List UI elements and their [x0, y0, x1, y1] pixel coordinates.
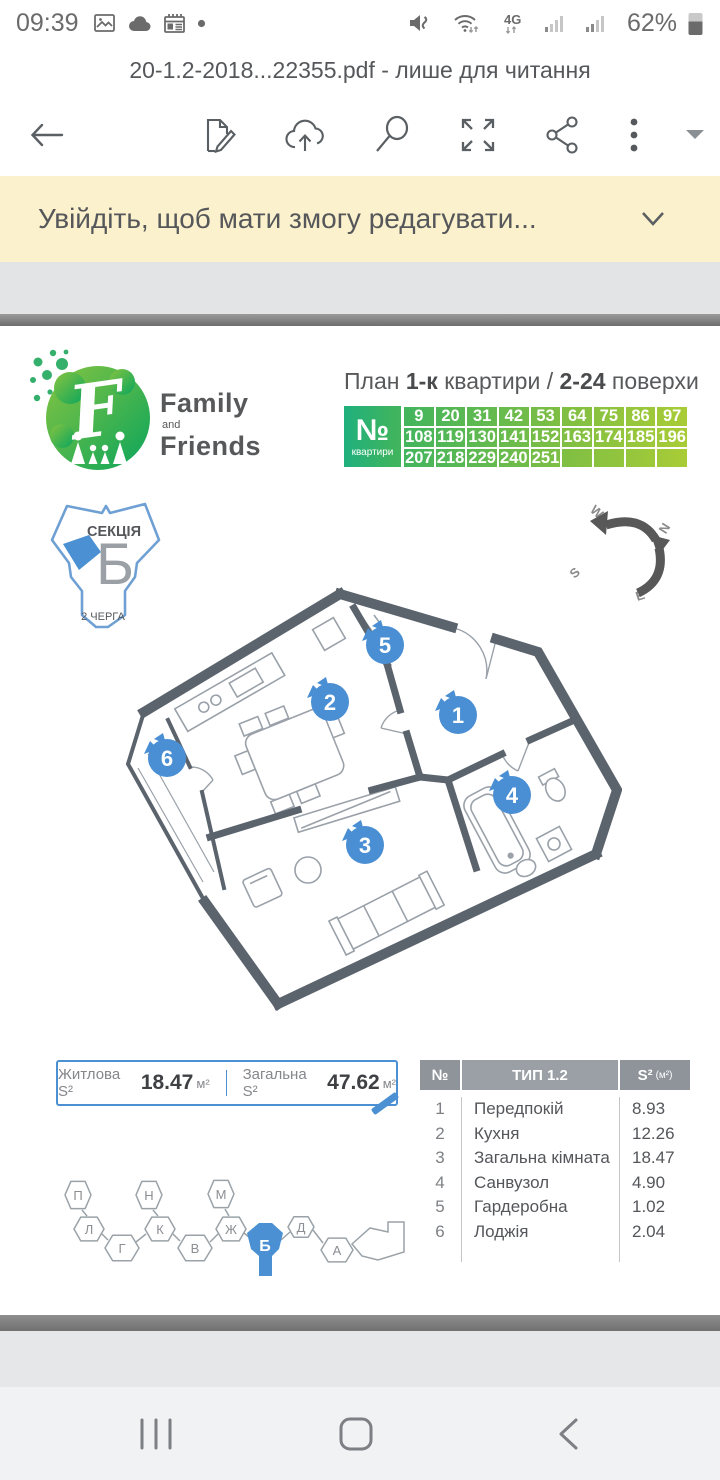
toolbar [0, 94, 720, 176]
room-marker-1: 1 [435, 690, 477, 734]
brand-wordmark: Family and Friends [160, 390, 261, 460]
apartment-number-cell: 97 [656, 406, 688, 427]
notification-dot-icon [197, 19, 206, 28]
room-number: 1 [420, 1099, 460, 1119]
apartment-number-cell: 75 [593, 406, 625, 427]
floor-plan: 123456 [102, 582, 622, 1050]
apartment-number-cell: 9 [403, 406, 435, 427]
sign-in-banner-text: Увійдіть, щоб мати змогу редагувати... [38, 203, 537, 235]
clock: 09:39 [16, 9, 79, 38]
section-label-Н: Н [144, 1188, 153, 1203]
home-button[interactable] [336, 1415, 376, 1453]
adjacent-building-outline [352, 1222, 404, 1260]
living-area-label: Житлова S² [58, 1066, 133, 1100]
room-area: 1.02 [620, 1197, 690, 1217]
chevron-down-icon [638, 208, 668, 230]
status-bar: 09:39 4G [0, 0, 720, 46]
room-marker-6: 6 [144, 733, 186, 777]
cloud-upload-icon [282, 115, 328, 155]
battery-percentage: 62% [627, 9, 677, 38]
svg-text:3: 3 [359, 833, 371, 858]
search-button[interactable] [373, 114, 413, 156]
apartment-number-cell [593, 448, 625, 469]
more-menu-dropdown[interactable] [684, 128, 706, 142]
brand-line-1: Family [160, 390, 261, 417]
living-area-unit: м² [196, 1076, 209, 1091]
apartment-number-cell: 251 [530, 448, 562, 469]
4g-network-icon: 4G [502, 12, 524, 35]
back-chevron-icon [552, 1415, 586, 1453]
apartment-number-cell: 130 [466, 427, 498, 448]
living-area-value: 18.47 [141, 1071, 194, 1095]
section-label-Л: Л [85, 1222, 94, 1237]
family-friends-logo: F [26, 344, 162, 480]
room-name: Передпокій [462, 1099, 618, 1119]
svg-text:N: N [656, 520, 674, 536]
share-button[interactable] [543, 114, 583, 156]
brand-line-2: and [162, 420, 261, 431]
room-table-divider-2 [619, 1097, 620, 1262]
apartment-number-cell [561, 448, 593, 469]
svg-text:4: 4 [506, 783, 519, 808]
apartment-number-cell: 229 [466, 448, 498, 469]
signal-strength-icon-sim2 [586, 14, 606, 32]
room-number: 3 [420, 1148, 460, 1168]
sign-in-banner[interactable]: Увійдіть, щоб мати змогу редагувати... [0, 176, 720, 262]
building-sections-map: ПЛГНКВМЖБДА [32, 1170, 410, 1318]
room-number: 6 [420, 1222, 460, 1242]
edit-document-button[interactable] [196, 114, 238, 156]
room-area: 4.90 [620, 1173, 690, 1193]
apartment-number-cell [656, 448, 688, 469]
apartment-number-cell: 240 [498, 448, 530, 469]
room-table: № ТИП 1.2 S²(м²) 1Передпокій8.932Кухня12… [420, 1060, 690, 1244]
apartment-number-cell: 207 [403, 448, 435, 469]
section-label-А: А [333, 1243, 342, 1258]
recents-icon [136, 1415, 176, 1453]
apartment-number-cell: 141 [498, 427, 530, 448]
more-vertical-icon [628, 114, 640, 156]
section-label-В: В [191, 1241, 200, 1256]
apartment-number-cell: 53 [530, 406, 562, 427]
viewer-background [0, 262, 720, 314]
room-table-col-no: № [420, 1060, 460, 1090]
total-area-value: 47.62 [327, 1071, 380, 1095]
section-label-Ж: Ж [225, 1222, 237, 1237]
section-label-Д: Д [297, 1220, 306, 1235]
section-label-Б: Б [259, 1238, 271, 1255]
room-markers: 123456 [144, 620, 531, 864]
room-area: 12.26 [620, 1124, 690, 1144]
wifi-icon [453, 12, 481, 35]
android-navigation-bar [0, 1387, 720, 1480]
svg-text:S: S [566, 564, 583, 581]
section-label-Г: Г [118, 1241, 125, 1256]
room-number: 4 [420, 1173, 460, 1193]
total-area-unit: м² [383, 1076, 396, 1091]
room-name: Загальна кімната [462, 1148, 618, 1168]
svg-text:2: 2 [324, 690, 336, 715]
back-nav-button[interactable] [552, 1415, 586, 1453]
room-area: 8.93 [620, 1099, 690, 1119]
document-title: 20-1.2-2018...22355.pdf - лише для читан… [129, 57, 590, 84]
room-table-col-type: ТИП 1.2 [462, 1060, 618, 1090]
svg-text:6: 6 [161, 746, 173, 771]
room-name: Санвузол [462, 1173, 618, 1193]
viewer-background-bottom [0, 1331, 720, 1387]
fullscreen-button[interactable] [457, 114, 499, 156]
recents-button[interactable] [136, 1415, 176, 1453]
more-menu-button[interactable] [628, 114, 640, 156]
apartment-number-cell: 152 [530, 427, 562, 448]
fullscreen-expand-icon [457, 114, 499, 156]
room-name: Гардеробна [462, 1197, 618, 1217]
apartment-number-cell: 86 [625, 406, 657, 427]
calendar-notification-icon [163, 13, 186, 34]
area-box-corner-accent [371, 1092, 399, 1115]
room-marker-3: 3 [342, 820, 384, 864]
document-title-bar: 20-1.2-2018...22355.pdf - лише для читан… [0, 46, 720, 94]
section-label-П: П [73, 1188, 82, 1203]
share-icon [543, 114, 583, 156]
apartment-number-cell: 185 [625, 427, 657, 448]
svg-text:5: 5 [379, 633, 391, 658]
apartment-number-cell: 196 [656, 427, 688, 448]
plan-title: План 1-к квартири / 2-24 поверхи [344, 368, 699, 395]
svg-text:1: 1 [452, 703, 464, 728]
network-type-label: 4G [504, 12, 521, 27]
dropdown-triangle-icon [684, 128, 706, 142]
section-label-К: К [156, 1222, 164, 1237]
apartment-number-cell: 64 [561, 406, 593, 427]
pdf-page[interactable]: F Family and Friends План 1-к квартири /… [0, 326, 720, 1315]
page-edge-shadow-bottom [0, 1315, 720, 1331]
area-divider [226, 1070, 227, 1096]
page-edge-shadow-top [0, 314, 720, 326]
section-label-М: М [216, 1187, 227, 1202]
brand-line-3: Friends [160, 433, 261, 460]
mute-vibrate-icon [408, 12, 432, 34]
total-area-label: Загальна S² [243, 1066, 320, 1100]
search-icon [373, 114, 413, 156]
area-summary-box: Житлова S² 18.47 м² Загальна S² 47.62 м² [56, 1060, 398, 1106]
phone-screen: 09:39 4G [0, 0, 720, 1480]
room-name: Лоджія [462, 1222, 618, 1242]
image-notification-icon [93, 12, 116, 34]
room-table-header: № ТИП 1.2 S²(м²) [420, 1060, 690, 1090]
cloud-notification-icon [127, 14, 152, 32]
apartment-number-cell: 31 [466, 406, 498, 427]
signal-strength-icon-sim1 [545, 14, 565, 32]
home-icon [336, 1415, 376, 1453]
apartment-number-cell: 42 [498, 406, 530, 427]
room-table-col-area: S²(м²) [620, 1060, 690, 1090]
room-name: Кухня [462, 1124, 618, 1144]
cloud-upload-button[interactable] [282, 115, 328, 155]
edit-document-icon [196, 114, 238, 156]
apartment-numbers-table: № квартири 92031425364758697108119130141… [344, 406, 688, 467]
battery-icon [687, 11, 704, 36]
room-area: 18.47 [620, 1148, 690, 1168]
apartment-number-cell: 20 [435, 406, 467, 427]
room-number: 2 [420, 1124, 460, 1144]
apartment-number-cell: 108 [403, 427, 435, 448]
banner-expand-button[interactable] [638, 208, 668, 230]
apartment-number-cell: 174 [593, 427, 625, 448]
room-area: 2.04 [620, 1222, 690, 1242]
apartment-number-cell: 163 [561, 427, 593, 448]
room-table-divider-1 [461, 1097, 462, 1262]
apartment-table-corner: № квартири [344, 406, 403, 467]
apartment-number-cell [625, 448, 657, 469]
room-number: 5 [420, 1197, 460, 1217]
apartment-number-cell: 218 [435, 448, 467, 469]
back-button[interactable] [26, 115, 66, 155]
apartment-number-cell: 119 [435, 427, 467, 448]
